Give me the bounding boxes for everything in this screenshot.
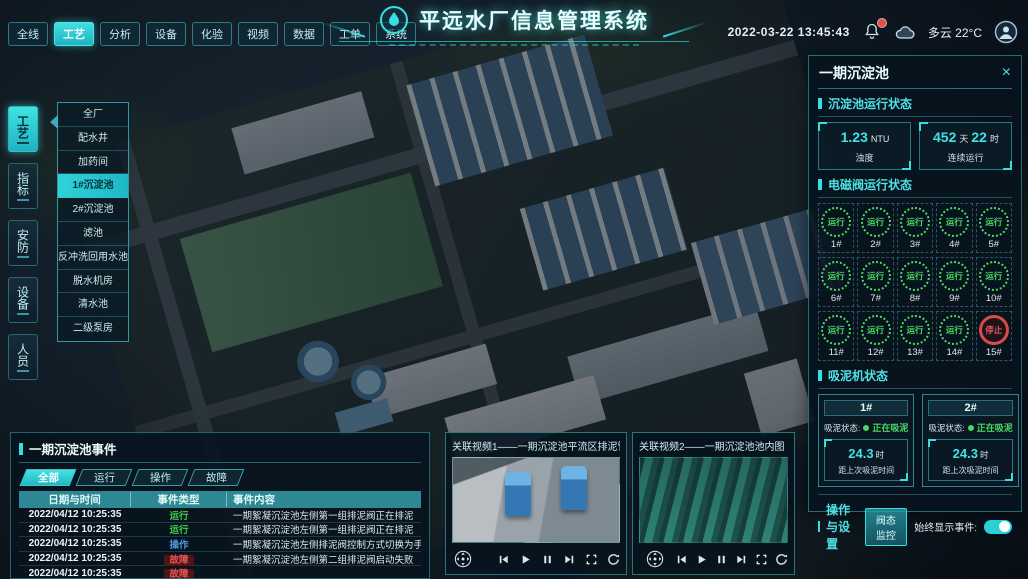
mud-machine-id: 2# [928,400,1012,416]
valve-gauge: 运行 [861,261,891,291]
valve-gauge: 运行 [821,315,851,345]
valve-status-text: 运行 [946,270,963,282]
video-feed-pump-gallery [452,457,620,543]
top-nav-tab[interactable]: 化验 [192,22,232,46]
section-title: 沉淀池运行状态 [828,95,912,112]
event-type-badge: 故障 [164,569,193,579]
mud-time-box: 24.3时距上次吸泥时间 [928,439,1012,481]
valve-status-text: 运行 [906,324,923,336]
valve-id: 7# [858,293,892,304]
valve-gauge: 运行 [939,261,969,291]
section-operations: 操作与设置 [818,501,858,552]
valve-status-text: 运行 [828,324,845,336]
fullscreen-icon[interactable] [755,553,768,566]
event-type: 故障 [131,564,227,579]
valve-id: 8# [898,293,932,304]
section-running-status: 沉淀池运行状态 [818,95,1012,117]
stat-unit: 时 [990,134,999,144]
event-filter-tab-label: 故障 [206,470,227,485]
event-content: 一期絮凝沉淀池左侧排泥阀控制方式切换为手动 [227,537,421,551]
video-controls [452,549,620,569]
event-content: 一期絮凝沉淀池左侧第一组排泥阀正在排泥 [227,522,421,536]
top-nav-tab[interactable]: 分析 [100,22,140,46]
process-menu-item[interactable]: 二级泵房 [58,317,128,341]
event-filter-tabs: 全部运行操作故障 [19,469,421,486]
mud-status-row: 吸泥状态:正在吸泥 [824,421,908,434]
skip-back-icon[interactable] [497,553,510,566]
section-title: 电磁阀运行状态 [828,176,912,193]
valve-id: 12# [858,347,892,358]
loop-icon[interactable] [775,553,788,566]
event-filter-tab[interactable]: 全部 [20,469,77,486]
bell-icon[interactable] [862,22,882,42]
valve-gauge: 运行 [861,207,891,237]
events-table-body: 2022/04/12 10:25:35运行一期絮凝沉淀池左侧第一组排泥阀正在排泥… [19,508,421,579]
valve-id: 13# [898,347,932,358]
process-menu-item[interactable]: 脱水机房 [58,270,128,294]
left-tab-strip: 工艺指标安防设备人员 [8,106,38,380]
side-tab[interactable]: 工艺 [8,106,38,152]
events-panel: 一期沉淀池事件 全部运行操作故障 日期与时间 事件类型 事件内容 2022/04… [10,432,430,579]
video-title: 关联视频2——一期沉淀池池内图 [639,438,788,453]
pan-control-icon[interactable] [646,550,664,568]
top-nav-tab[interactable]: 工艺 [54,22,94,46]
close-icon[interactable]: × [1002,66,1011,80]
valve-id: 3# [898,239,932,250]
valve-status-text: 运行 [867,216,884,228]
stat-value: 452天22时 [922,129,1009,147]
process-menu-item[interactable]: 滤池 [58,222,128,246]
valve-id: 10# [977,293,1011,304]
stat-label: 浊度 [821,151,908,164]
process-menu: 全厂配水井加药间1#沉淀池2#沉淀池滤池反冲洗回用水池脱水机房清水池二级泵房 [57,102,129,342]
header-decoration [339,41,689,46]
valve-status-text: 运行 [985,270,1002,282]
toggle-knob [999,521,1010,532]
top-header: 全线工艺分析设备化验视频数据工单系统 平远水厂信息管理系统 2022-03-22… [0,0,1028,46]
video-panel-2: 关联视频2——一期沉淀池池内图 [632,432,795,575]
col-datetime: 日期与时间 [19,492,131,507]
stat-unit: NTU [871,134,890,144]
loop-icon[interactable] [607,553,620,566]
process-menu-item[interactable]: 反冲洗回用水池 [58,246,128,270]
valve-gauge: 运行 [939,315,969,345]
valve-gauge-cell: 运行1# [818,203,854,253]
skip-back-icon[interactable] [675,553,688,566]
valve-status-text: 运行 [906,216,923,228]
mud-time-box: 24.3时距上次吸泥时间 [824,439,908,481]
valve-gauge: 运行 [900,315,930,345]
section-title: 操作与设置 [826,501,858,552]
status-dot-icon [968,425,974,431]
mud-machine-cards: 1#吸泥状态:正在吸泥24.3时距上次吸泥时间2#吸泥状态:正在吸泥24.3时距… [818,394,1012,487]
event-content: 一期絮凝沉淀池左侧第一组排泥阀正在排泥 [227,508,421,522]
video-controls [639,549,788,569]
events-title: 一期沉淀池事件 [29,439,117,458]
event-row[interactable]: 2022/04/12 10:25:35故障 [19,566,421,579]
section-mud-machines: 吸泥机状态 [818,367,1012,389]
valve-status-text: 运行 [906,270,923,282]
side-tab[interactable]: 指标 [8,163,38,209]
top-nav-tab[interactable]: 视频 [238,22,278,46]
valve-gauge: 运行 [979,261,1009,291]
water-drop-logo-icon [379,5,409,35]
stat-card: 1.23NTU浊度 [818,122,911,170]
header-right: 2022-03-22 13:45:43 多云 22°C [728,20,1018,44]
valve-gauge-cell: 运行10# [976,257,1012,307]
running-stats: 1.23NTU浊度452天22时连续运行 [818,122,1012,170]
valve-id: 2# [858,239,892,250]
skip-forward-icon[interactable] [735,553,748,566]
valve-gauge-cell: 运行12# [857,311,893,361]
mud-status-value: 正在吸泥 [977,421,1013,434]
valve-status-text: 运行 [828,270,845,282]
valve-id: 9# [937,293,971,304]
top-nav-tab[interactable]: 全线 [8,22,48,46]
valve-monitor-button[interactable]: 阀态监控 [865,508,908,546]
pause-icon[interactable] [541,553,554,566]
valve-status-text: 运行 [946,324,963,336]
valve-gauge: 运行 [821,261,851,291]
valve-id: 14# [937,347,971,358]
mud-time-unit: 时 [876,450,885,460]
weather-text: 多云 22°C [928,24,982,41]
stat-number: 452 [933,129,956,145]
app-title-block: 平远水厂信息管理系统 [323,5,705,35]
pan-control-icon[interactable] [454,550,472,568]
stat-unit: 天 [959,134,968,144]
valve-gauge: 运行 [900,261,930,291]
mud-status-row: 吸泥状态:正在吸泥 [928,421,1012,434]
valve-gauge-cell: 运行7# [857,257,893,307]
user-avatar[interactable] [994,20,1018,44]
mud-machine-id: 1# [824,400,908,416]
mud-status-label: 吸泥状态: [824,422,860,434]
cloud-icon [894,23,916,41]
valve-gauge-grid: 运行1#运行2#运行3#运行4#运行5#运行6#运行7#运行8#运行9#运行10… [818,203,1012,361]
event-filter-tab-label: 操作 [150,470,171,485]
valve-gauge: 运行 [821,207,851,237]
mud-time-value: 24.3 [953,446,978,461]
valve-status-text: 运行 [867,270,884,282]
col-content: 事件内容 [227,492,421,507]
mud-status-label: 吸泥状态: [928,422,964,434]
event-filter-tab[interactable]: 故障 [188,469,245,486]
play-icon[interactable] [695,553,708,566]
event-filter-tab[interactable]: 运行 [76,469,133,486]
valve-id: 5# [977,239,1011,250]
notification-badge [877,18,887,28]
stat-number: 1.23 [841,129,868,145]
app-title: 平远水厂信息管理系统 [419,5,649,35]
valve-gauge-cell: 运行6# [818,257,854,307]
datetime-text: 2022-03-22 13:45:43 [728,25,850,39]
detail-panel: 一期沉淀池 × 沉淀池运行状态 1.23NTU浊度452天22时连续运行 电磁阀… [808,55,1022,512]
valve-gauge: 运行 [939,207,969,237]
video-panel-1: 关联视频1——一期沉淀池平流区排泥管廊 [445,432,627,575]
process-menu-item[interactable]: 2#沉淀池 [58,198,128,222]
video-title: 关联视频1——一期沉淀池平流区排泥管廊 [452,438,620,453]
col-type: 事件类型 [131,492,227,507]
top-nav-tab[interactable]: 数据 [284,22,324,46]
section-title: 吸泥机状态 [828,367,888,384]
valve-gauge: 停止 [979,315,1009,345]
mud-time-value: 24.3 [848,446,873,461]
events-panel-header: 一期沉淀池事件 [19,439,421,463]
side-tab[interactable]: 设备 [8,277,38,323]
fullscreen-icon[interactable] [585,553,598,566]
mud-machine-card: 2#吸泥状态:正在吸泥24.3时距上次吸泥时间 [922,394,1018,487]
valve-gauge-cell: 运行5# [976,203,1012,253]
valve-status-text: 运行 [946,216,963,228]
process-menu-item[interactable]: 全厂 [58,103,128,127]
stat-card: 452天22时连续运行 [919,122,1012,170]
mud-time-caption: 距上次吸泥时间 [826,465,906,476]
panel-title: 一期沉淀池 [819,63,889,83]
process-menu-item[interactable]: 清水池 [58,293,128,317]
valve-status-text: 停止 [985,324,1002,336]
valve-gauge-cell: 运行11# [818,311,854,361]
mud-time-caption: 距上次吸泥时间 [930,465,1010,476]
valve-gauge-cell: 运行3# [897,203,933,253]
valve-gauge-cell: 运行13# [897,311,933,361]
event-filter-tab-label: 运行 [94,470,115,485]
show-events-toggle[interactable] [984,520,1012,534]
process-menu-item[interactable]: 加药间 [58,151,128,175]
play-icon[interactable] [519,553,532,566]
valve-id: 15# [977,347,1011,358]
skip-forward-icon[interactable] [563,553,576,566]
event-datetime: 2022/04/12 10:25:35 [19,524,131,535]
detail-panel-header: 一期沉淀池 × [818,56,1012,89]
valve-gauge-cell: 运行4# [936,203,972,253]
event-content: 一期絮凝沉淀池左侧第二组排泥阀启动失败 [227,552,421,566]
event-filter-tab-label: 全部 [38,470,59,485]
event-datetime: 2022/04/12 10:25:35 [19,538,131,549]
event-datetime: 2022/04/12 10:25:35 [19,509,131,520]
valve-id: 4# [937,239,971,250]
show-events-label: 始终显示事件: [914,519,977,534]
dashboard-root: 全线工艺分析设备化验视频数据工单系统 平远水厂信息管理系统 2022-03-22… [0,0,1028,579]
valve-id: 11# [819,347,853,358]
side-tab[interactable]: 安防 [8,220,38,266]
video-feed-sedimentation-lanes [639,457,788,543]
status-dot-icon [863,425,869,431]
section-valves: 电磁阀运行状态 [818,176,1012,198]
valve-status-text: 运行 [828,216,845,228]
mud-machine-card: 1#吸泥状态:正在吸泥24.3时距上次吸泥时间 [818,394,914,487]
event-datetime: 2022/04/12 10:25:35 [19,553,131,564]
valve-id: 1# [819,239,853,250]
process-menu-item[interactable]: 1#沉淀池 [58,174,128,198]
operations-row: 操作与设置 阀态监控 始终显示事件: [818,494,1012,552]
stat-number: 22 [971,129,987,145]
side-tab[interactable]: 人员 [8,334,38,380]
valve-gauge-cell: 运行8# [897,257,933,307]
mud-time-unit: 时 [980,450,989,460]
valve-id: 6# [819,293,853,304]
valve-status-text: 运行 [867,324,884,336]
top-nav-tab[interactable]: 设备 [146,22,186,46]
valve-status-text: 运行 [985,216,1002,228]
valve-gauge-cell: 停止15# [976,311,1012,361]
valve-gauge: 运行 [861,315,891,345]
pause-icon[interactable] [715,553,728,566]
valve-gauge-cell: 运行2# [857,203,893,253]
mud-status-value: 正在吸泥 [872,421,908,434]
valve-gauge-cell: 运行9# [936,257,972,307]
valve-gauge: 运行 [900,207,930,237]
event-filter-tab[interactable]: 操作 [132,469,189,486]
stat-label: 连续运行 [922,151,1009,164]
event-datetime: 2022/04/12 10:25:35 [19,568,131,579]
process-menu-item[interactable]: 配水井 [58,127,128,151]
stat-value: 1.23NTU [821,129,908,147]
valve-gauge-cell: 运行14# [936,311,972,361]
valve-gauge: 运行 [979,207,1009,237]
